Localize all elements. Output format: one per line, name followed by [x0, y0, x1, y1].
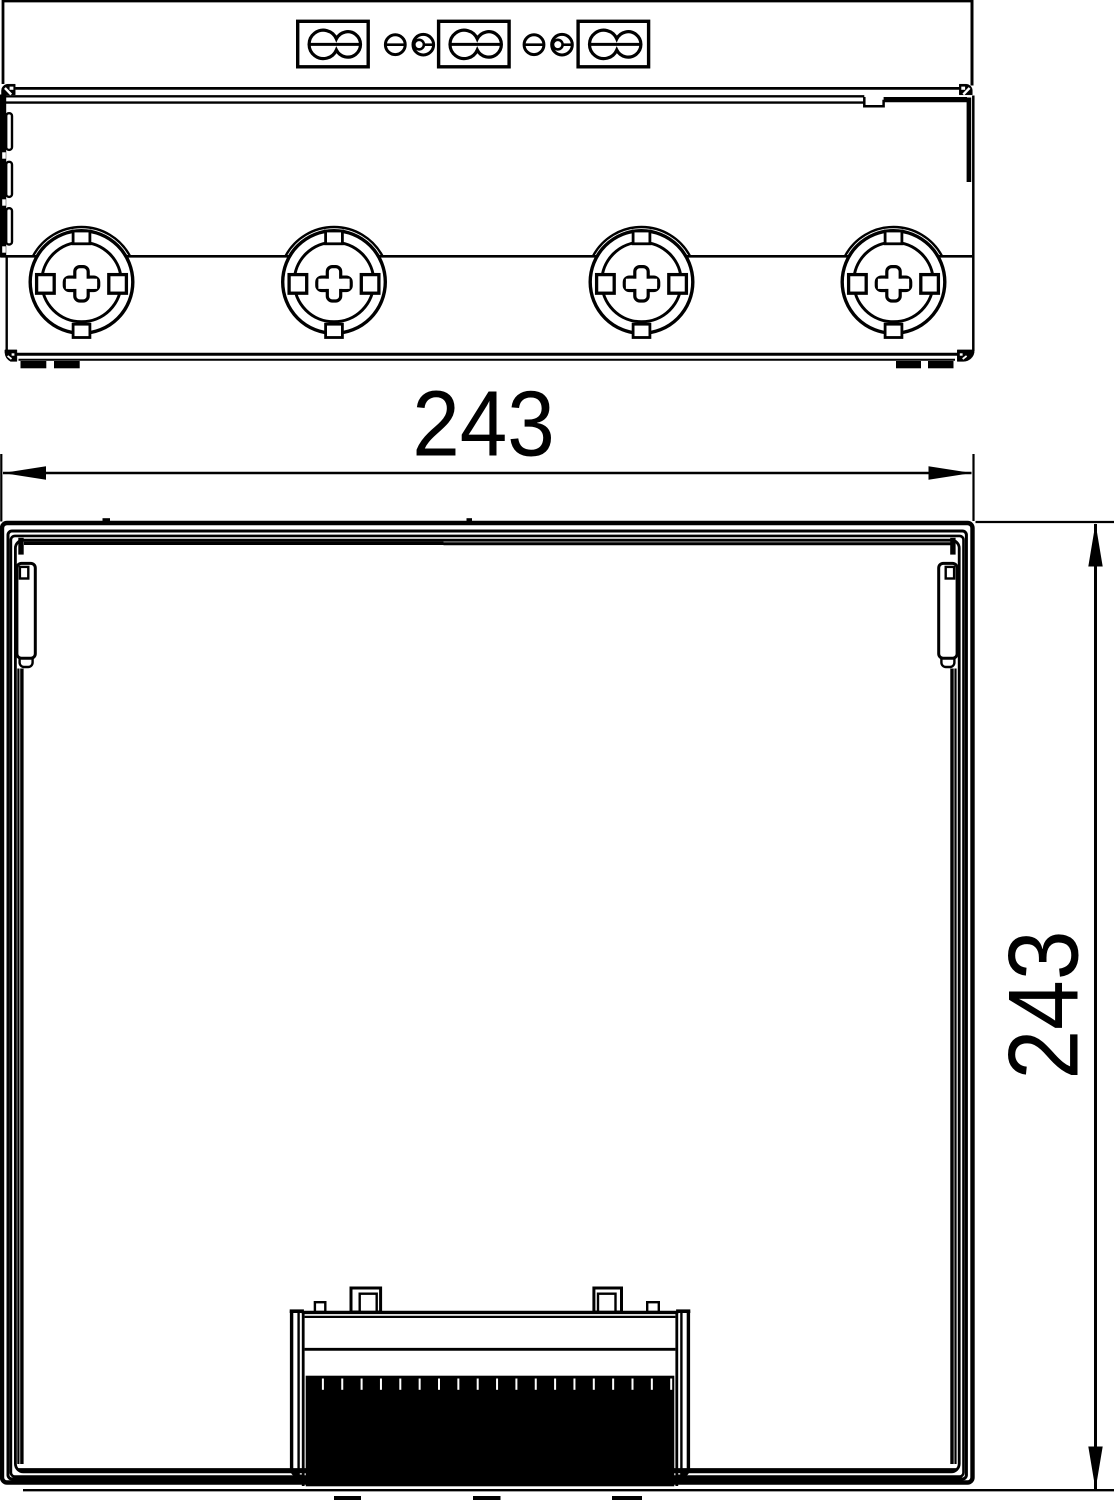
- svg-text:243: 243: [412, 372, 555, 476]
- svg-text:243: 243: [988, 931, 1099, 1080]
